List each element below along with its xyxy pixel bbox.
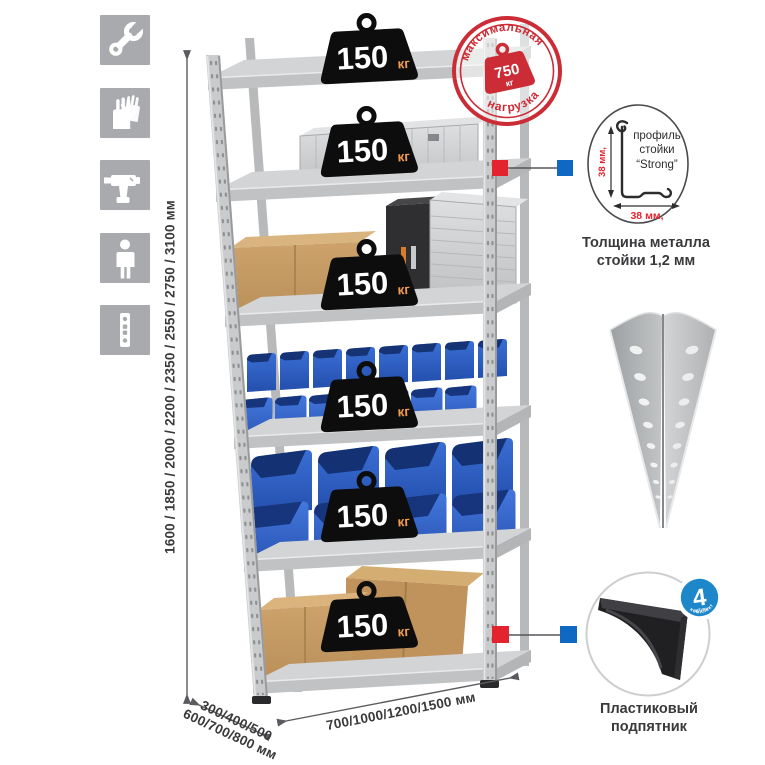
profile-caption: Толщина металла стойки 1,2 мм (570, 234, 722, 270)
red-marker-bottom (492, 626, 509, 643)
foot-caption-line1: Пластиковый (576, 700, 722, 718)
svg-text:150: 150 (336, 265, 389, 303)
gloves-icon (100, 88, 150, 138)
drill-icon (100, 160, 150, 210)
foot-caption-line2: подпятник (576, 718, 722, 736)
svg-text:кг: кг (397, 404, 411, 420)
svg-text:150: 150 (336, 39, 389, 77)
profile-dim-vertical: 38 мм, (597, 147, 608, 177)
svg-text:кг: кг (397, 514, 411, 530)
svg-text:кг: кг (397, 149, 411, 165)
svg-text:кг: кг (397, 624, 411, 640)
max-load-stamp: максимальная нагрузка 750 кг (430, 0, 584, 148)
profile-dim-horizontal: 38 мм, (630, 210, 663, 222)
foot-caption: Пластиковый подпятник (576, 700, 722, 736)
red-marker-top (492, 160, 508, 176)
shelf-load-badge-5: 150 кг (306, 467, 430, 549)
svg-text:“Strong”: “Strong” (636, 159, 678, 171)
svg-text:150: 150 (336, 387, 389, 425)
rack-post-icon (100, 305, 150, 355)
svg-text:кг: кг (397, 56, 411, 72)
svg-text:стойки: стойки (639, 144, 674, 156)
shelf-load-badge-4: 150 кг (306, 357, 430, 439)
profile-callout-connector (492, 160, 573, 176)
svg-text:150: 150 (336, 607, 389, 645)
svg-text:кг: кг (397, 282, 411, 298)
blue-marker-top (557, 160, 573, 176)
svg-text:150: 150 (336, 497, 389, 535)
shelf-load-badge-6: 150 кг (306, 577, 430, 659)
post-profile-detail: 38 мм, 38 мм, профиль стойки “Strong” (578, 102, 700, 228)
blue-marker-bottom (560, 626, 577, 643)
profile-caption-line2: стойки 1,2 мм (570, 252, 722, 270)
angle-post-image (596, 298, 732, 543)
profile-label: профиль стойки “Strong” (633, 130, 681, 171)
profile-caption-line1: Толщина металла (570, 234, 722, 252)
svg-text:профиль: профиль (633, 130, 681, 142)
qty-badge: 4 штуки в комплекте (673, 571, 726, 624)
person-icon (100, 233, 150, 283)
svg-text:150: 150 (336, 132, 389, 170)
shelf-load-badge-1: 150 кг (306, 9, 430, 91)
wrench-icon (100, 15, 150, 65)
shelf-load-badge-2: 150 кг (306, 102, 430, 184)
product-infographic: максимальная нагрузка 750 кг 150 кг 150 … (0, 0, 765, 765)
shelf-load-badge-3: 150 кг (306, 235, 430, 317)
foot-callout-connector (492, 626, 577, 643)
